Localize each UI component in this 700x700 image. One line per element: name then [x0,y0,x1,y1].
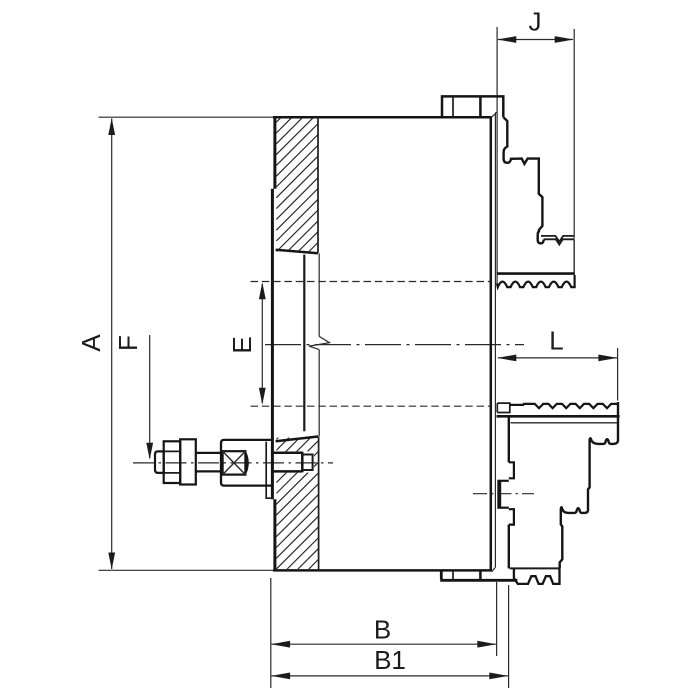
svg-text:B1: B1 [374,645,406,675]
svg-text:J: J [529,7,542,37]
svg-text:F: F [113,335,143,351]
svg-text:E: E [227,336,257,353]
svg-text:L: L [549,326,563,356]
svg-text:A: A [76,334,106,352]
svg-text:B: B [374,615,391,645]
